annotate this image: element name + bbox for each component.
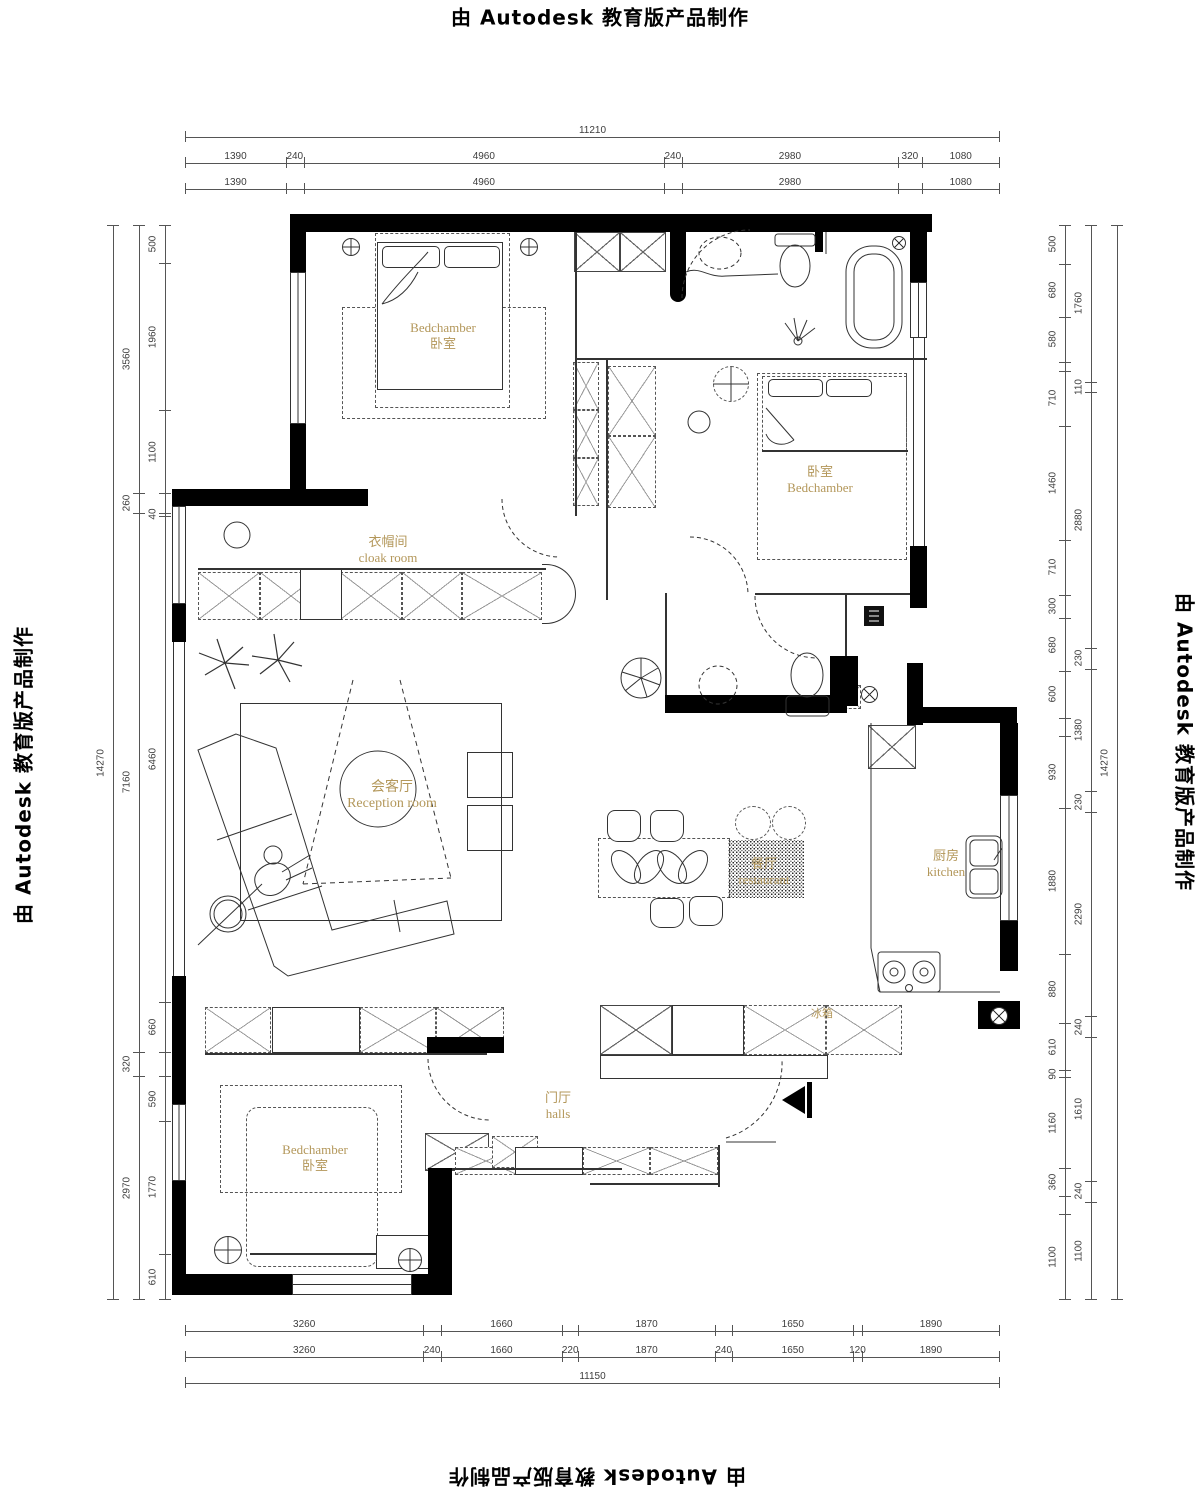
dimension-value: 260: [121, 495, 132, 512]
dimension-segment: 710: [1040, 540, 1066, 595]
door-arc-bedroom1: [502, 499, 560, 557]
wall-segment: [172, 604, 186, 642]
dimension-value: 1890: [920, 1319, 942, 1330]
cabinet: [600, 1055, 828, 1079]
wall-segment: [665, 695, 847, 713]
dimension-segment: 1880: [1040, 808, 1066, 954]
dimension-segment: [286, 164, 303, 190]
cabinet-xbox: [574, 232, 620, 272]
dimension-segment: 610: [140, 1254, 166, 1300]
dimension-segment: [664, 164, 681, 190]
dim-col-right-total: 14270: [1092, 225, 1118, 1300]
window: [1000, 795, 1018, 921]
shower-head: [785, 318, 815, 341]
watermark-brand: Autodesk: [480, 6, 594, 30]
fixture-label-fridge: 冰箱: [811, 1008, 833, 1020]
thin-wall: [913, 338, 925, 546]
dim-row-top-detailed: 1390240496024029803201080: [185, 138, 1000, 164]
dimension-segment: 11210: [185, 112, 1000, 138]
dimension-segment: 220: [562, 1332, 578, 1358]
dimension-value: 6460: [147, 748, 158, 770]
dimension-value: 320: [121, 1056, 132, 1073]
bed-pillow: [826, 379, 872, 397]
watermark-left: 由 Autodesk 教育版产品制作: [8, 626, 37, 924]
dimension-value: 1770: [147, 1176, 158, 1198]
floorplan-page: { "watermark": {"prefix": "由", "brand": …: [0, 0, 1200, 1500]
stool: [224, 522, 250, 548]
dimension-segment: 1080: [922, 138, 1001, 164]
dimension-value: 710: [1047, 390, 1058, 407]
watermark-suffix: 教育版产品制作: [448, 1465, 595, 1489]
dimension-segment: 1080: [922, 164, 1001, 190]
stool-2: [688, 411, 710, 433]
burner-center: [890, 968, 898, 976]
window: [290, 272, 306, 424]
dimension-segment: 240: [715, 1332, 733, 1358]
dining-chair-dashed: [735, 806, 771, 840]
wall-stub: [670, 232, 686, 302]
interior-wall: [665, 593, 667, 695]
wall-segment: [910, 546, 927, 608]
room-label-en: Bedchamber: [787, 480, 853, 496]
dimension-segment: 1390: [185, 138, 286, 164]
dimension-segment: 660: [140, 1002, 166, 1052]
wall-segment: [172, 489, 368, 506]
dimension-value: 1890: [920, 1345, 942, 1356]
dim-row-bottom-coarse: 32601660187016501890: [185, 1306, 1000, 1332]
burner-center: [920, 968, 928, 976]
bathtub-inner: [854, 254, 894, 340]
dimension-segment: 590: [140, 1076, 166, 1120]
dimension-segment: 1770: [140, 1121, 166, 1254]
dimension-value: 1650: [782, 1319, 804, 1330]
wall-segment: [172, 976, 186, 1106]
dimension-value: 1870: [635, 1319, 657, 1330]
dimension-segment: 11150: [185, 1358, 1000, 1384]
dimension-segment: 7160: [114, 513, 140, 1052]
wardrobe-end-cap: [542, 564, 576, 624]
door-arc-bathroom2: [755, 596, 817, 658]
toilet2-bowl: [791, 653, 823, 697]
dimension-segment: 500: [140, 225, 166, 263]
dimension-segment: 1100: [140, 410, 166, 493]
dimension-segment: 710: [1040, 371, 1066, 426]
room-label-en: Bedchamber: [282, 1142, 348, 1158]
dimension-value: 1960: [147, 325, 158, 347]
room-label-zh: 冰箱: [811, 1008, 833, 1020]
rug-outline: [240, 703, 502, 921]
watermark-bottom: 由 Autodesk 教育版产品制作: [448, 1464, 746, 1493]
interior-wall: [575, 358, 927, 360]
cabinet: [515, 1147, 583, 1175]
floorplan-canvas: Bedchamber 卧室 卧室 Bedchamber 衣帽间 cloak ro…: [170, 208, 1038, 1300]
shower-point: [794, 337, 802, 345]
dimension-segment: 1380: [1066, 669, 1092, 792]
room-label-zh: 厨房: [927, 848, 965, 864]
dimension-value: 2880: [1073, 509, 1084, 531]
dimension-value: 230: [1073, 650, 1084, 667]
vanity-counter: [686, 270, 778, 276]
dimension-segment: 1100: [1040, 1214, 1066, 1300]
bed-outline: [246, 1107, 378, 1267]
bed-pillow: [444, 246, 500, 268]
ceiling-fan-icon: [713, 366, 749, 402]
dimension-segment: 1960: [140, 263, 166, 411]
wardrobe-xbox: [608, 366, 656, 436]
drain-icon: [892, 236, 906, 250]
dim-col-right-detailed: 5006805807101460710300680600930188088061…: [1040, 225, 1066, 1300]
interior-wall: [762, 450, 908, 452]
dimension-value: 1100: [1073, 1240, 1084, 1262]
dimension-segment: 240: [423, 1332, 441, 1358]
interior-wall: [447, 1168, 622, 1170]
dining-chair: [607, 810, 641, 842]
dining-chair: [689, 896, 723, 926]
wall-segment: [910, 232, 927, 282]
dimension-value: 230: [1073, 793, 1084, 810]
dimension-value: 580: [1047, 331, 1058, 348]
interior-wall: [606, 360, 608, 600]
dimension-segment: 4960: [304, 164, 665, 190]
dimension-segment: 240: [286, 138, 303, 164]
toilet-tank: [775, 234, 815, 246]
dimension-value: 240: [286, 151, 303, 162]
wall-segment: [815, 232, 823, 252]
dimension-segment: 1890: [862, 1306, 1000, 1332]
dimension-value: 2290: [1073, 903, 1084, 925]
dimension-value: 1080: [950, 151, 972, 162]
dimension-value: 680: [1047, 282, 1058, 299]
fan: [621, 658, 661, 698]
dimension-value: 240: [424, 1345, 441, 1356]
interior-wall: [755, 593, 927, 595]
watermark-brand: Autodesk: [12, 781, 36, 895]
wall-segment: [290, 214, 306, 272]
dimension-value: 1160: [1047, 1112, 1058, 1134]
bathtub: [846, 246, 902, 348]
dimension-segment: 240: [664, 138, 681, 164]
window: [172, 1104, 186, 1181]
dimension-value: 610: [147, 1269, 158, 1286]
room-label-zh: 会客厅: [347, 780, 437, 796]
dimension-value: 300: [1047, 598, 1058, 615]
wardrobe-xbox: [360, 1007, 436, 1053]
dimension-segment: 320: [898, 138, 921, 164]
electrical-panel-grid: [869, 611, 879, 621]
dimension-segment: 3260: [185, 1332, 423, 1358]
interior-wall: [250, 1253, 376, 1255]
dimension-value: 1650: [782, 1345, 804, 1356]
dimension-value: 240: [665, 151, 682, 162]
room-label-kitchen: 厨房 kitchen: [927, 848, 965, 880]
interior-wall: [718, 1145, 720, 1187]
dimension-value: 680: [1047, 636, 1058, 653]
dimension-segment: 300: [1040, 595, 1066, 618]
burner: [913, 961, 935, 983]
room-label-zh: 卧室: [282, 1158, 348, 1174]
dimension-value: 2980: [779, 177, 801, 188]
dimension-value: 1390: [224, 177, 246, 188]
room-label-en: Reception room: [347, 796, 437, 812]
dimension-value: 1080: [950, 177, 972, 188]
ceiling-light-icon: [398, 1248, 422, 1272]
plant: [199, 634, 302, 689]
dimension-segment: 14270: [88, 225, 114, 1300]
dimension-segment: [715, 1306, 733, 1332]
dimension-segment: 500: [1040, 225, 1066, 264]
thin-wall: [173, 638, 185, 976]
room-label-reception-room: 会客厅 Reception room: [347, 780, 437, 812]
room-label-bedroom-right: 卧室 Bedchamber: [787, 464, 853, 496]
dimension-segment: [1040, 718, 1066, 736]
dimension-segment: 1760: [1066, 225, 1092, 382]
dimension-value: 500: [147, 235, 158, 252]
stove-knob: [906, 985, 913, 992]
room-label-cloak-room: 衣帽间 cloak room: [359, 534, 418, 566]
dim-col-right-coarse: 176011028802301380230229024016102401100: [1066, 225, 1092, 1300]
dimension-value: 120: [849, 1345, 866, 1356]
dimension-block-right: 5006805807101460710300680600930188088061…: [1040, 225, 1118, 1300]
wardrobe-xbox: [608, 436, 656, 508]
bed-pillow: [768, 379, 823, 397]
dimension-segment: 6460: [140, 516, 166, 1003]
dim-row-bottom-detailed: 32602401660220187024016501201890: [185, 1332, 1000, 1358]
dimension-value: 360: [1047, 1173, 1058, 1190]
dimension-value: 710: [1047, 559, 1058, 576]
dimension-segment: 600: [1040, 671, 1066, 718]
door-arc-bedroom2: [690, 537, 748, 595]
dimension-value: 320: [902, 151, 919, 162]
cabinet: [672, 1005, 744, 1055]
dimension-value: 1880: [1047, 870, 1058, 892]
dimension-segment: 2290: [1066, 812, 1092, 1016]
wardrobe-xbox: [402, 572, 462, 620]
dimension-segment: 14270: [1092, 225, 1118, 1300]
cabinet: [272, 1007, 360, 1053]
dining-chair: [650, 898, 684, 928]
watermark-prefix: 由: [725, 1465, 746, 1489]
room-label-zh: 门厅: [545, 1090, 571, 1106]
door-arc-bedroom3: [428, 1059, 490, 1120]
dimension-segment: 2880: [1066, 392, 1092, 649]
burner: [883, 961, 905, 983]
rug-outline: [467, 805, 513, 851]
dimension-value: 110: [1073, 379, 1084, 395]
dimension-value: 11210: [579, 125, 606, 136]
dimension-block-left: 14270 356026071603202970 500196011004064…: [88, 225, 166, 1300]
wardrobe-xbox: [462, 572, 542, 620]
door-arc-bathroom1: [682, 230, 750, 298]
wall-segment: [428, 1168, 452, 1295]
dimension-value: 240: [715, 1345, 732, 1356]
dimension-segment: 1870: [578, 1332, 715, 1358]
room-label-bedroom-top-left: Bedchamber 卧室: [410, 320, 476, 352]
room-label-en: Bedchamber: [410, 320, 476, 336]
dimension-segment: 240: [1066, 1181, 1092, 1202]
dimension-segment: 2970: [114, 1076, 140, 1300]
watermark-right: 由 Autodesk 教育版产品制作: [1172, 593, 1200, 891]
dim-row-top-coarse: 1390496029801080: [185, 164, 1000, 190]
watermark-brand: Autodesk: [1173, 622, 1197, 736]
dimension-segment: 120: [853, 1332, 862, 1358]
window: [172, 506, 186, 604]
window: [910, 282, 927, 338]
watermark-prefix: 由: [451, 6, 472, 30]
rug-outline: [467, 752, 513, 798]
dimension-value: 1390: [224, 151, 246, 162]
dimension-value: 880: [1047, 980, 1058, 997]
dimension-value: 1660: [490, 1345, 512, 1356]
dimension-value: 500: [1047, 236, 1058, 253]
dimension-value: 610: [1047, 1038, 1058, 1055]
room-label-zh: 卧室: [787, 464, 853, 480]
dimension-segment: 1660: [441, 1306, 562, 1332]
wall-segment: [907, 707, 1017, 723]
interior-wall: [575, 232, 577, 516]
dimension-segment: 1460: [1040, 426, 1066, 540]
dimension-segment: 680: [1040, 264, 1066, 317]
interior-wall: [205, 1053, 487, 1055]
dimension-value: 3260: [293, 1345, 315, 1356]
sink: [966, 836, 1002, 898]
wardrobe-xbox: [205, 1007, 271, 1053]
dimension-segment: [1040, 1196, 1066, 1215]
room-label-zh: 卧室: [410, 336, 476, 352]
dimension-segment: 230: [1066, 648, 1092, 668]
floor-drain-inner: [214, 900, 242, 928]
room-label-halls: 门厅 halls: [545, 1090, 571, 1122]
interior-wall: [590, 1183, 720, 1185]
dimension-segment: 2980: [682, 164, 899, 190]
watermark-suffix: 教育版产品制作: [1173, 744, 1197, 891]
dimension-segment: 930: [1040, 736, 1066, 808]
dimension-value: 4960: [473, 151, 495, 162]
dimension-value: 930: [1047, 764, 1058, 781]
dimension-value: 220: [562, 1345, 579, 1356]
dimension-value: 2970: [121, 1177, 132, 1199]
dimension-value: 1610: [1073, 1098, 1084, 1120]
room-label-en: cloak room: [359, 550, 418, 566]
sink-basin: [970, 840, 998, 866]
dimension-segment: 240: [1066, 1016, 1092, 1037]
dim-col-left-detailed: 500196011004064606605901770610: [140, 225, 166, 1300]
wall-segment: [1000, 921, 1018, 971]
dimension-value: 4960: [473, 177, 495, 188]
dimension-value: 2980: [779, 151, 801, 162]
dimension-segment: [562, 1306, 578, 1332]
dimension-segment: [898, 164, 921, 190]
watermark-prefix: 由: [12, 903, 36, 924]
dimension-value: 3260: [293, 1319, 315, 1330]
dining-chair-dashed: [772, 806, 806, 840]
dimension-segment: 230: [1066, 791, 1092, 811]
room-label-en: kitchen: [927, 864, 965, 880]
dimension-segment: [423, 1306, 441, 1332]
dimension-segment: 680: [1040, 618, 1066, 671]
room-label-en: restaurant: [738, 872, 789, 888]
entry-arrow: [782, 1086, 805, 1114]
dimension-segment: 580: [1040, 317, 1066, 362]
dimension-segment: 1870: [578, 1306, 715, 1332]
dimension-segment: 4960: [304, 138, 665, 164]
ceiling-light-icon: [342, 238, 360, 256]
wardrobe-xbox: [826, 1005, 902, 1055]
dim-col-left-coarse: 356026071603202970: [114, 225, 140, 1300]
wardrobe-xbox: [650, 1147, 718, 1175]
wall-segment: [290, 214, 932, 232]
dimension-value: 3560: [121, 348, 132, 370]
ceiling-light-icon: [520, 238, 538, 256]
wall-segment: [172, 1274, 292, 1295]
interior-wall: [198, 568, 546, 570]
dimension-block-bottom: 32601660187016501890 3260240166022018702…: [185, 1306, 1000, 1384]
cabinet-xbox: [600, 1005, 672, 1055]
dimension-value: 11150: [579, 1371, 605, 1382]
dimension-value: 240: [1073, 1183, 1084, 1200]
dimension-value: 1460: [1047, 472, 1058, 494]
dim-row-top-total: 11210: [185, 112, 1000, 138]
wall-segment: [1000, 723, 1018, 795]
dimension-segment: 1660: [441, 1332, 562, 1358]
watermark-top: 由 Autodesk 教育版产品制作: [451, 2, 749, 31]
dining-chair: [650, 810, 684, 842]
wardrobe-xbox: [340, 572, 402, 620]
dimension-segment: 1890: [862, 1332, 1000, 1358]
dimension-segment: 260: [114, 493, 140, 513]
dimension-value: 14270: [1099, 749, 1110, 777]
dimension-segment: 3560: [114, 225, 140, 493]
electrical-panel: [864, 606, 884, 626]
dimension-segment: 610: [1040, 1023, 1066, 1070]
dimension-segment: 360: [1040, 1168, 1066, 1196]
watermark-suffix: 教育版产品制作: [12, 626, 36, 773]
wall-segment: [427, 1037, 504, 1053]
dimension-segment: 2980: [682, 138, 899, 164]
dimension-block-top: 11210 1390240496024029803201080 13904960…: [185, 112, 1000, 190]
wardrobe-xbox: [583, 1147, 650, 1175]
entry-arrow-bar: [807, 1082, 812, 1118]
window: [292, 1274, 412, 1295]
dimension-value: 1100: [1047, 1246, 1058, 1268]
drain-icon: [861, 686, 878, 703]
dimension-segment: 320: [114, 1052, 140, 1076]
dimension-value: 1760: [1073, 292, 1084, 314]
bed-pillow: [382, 246, 440, 268]
stove: [878, 952, 940, 992]
dimension-segment: 1160: [1040, 1077, 1066, 1167]
dimension-segment: 1100: [1066, 1202, 1092, 1300]
toilet-bowl: [780, 245, 810, 287]
dim-row-bottom-total: 11150: [185, 1358, 1000, 1384]
dimension-value: 1100: [147, 441, 158, 463]
dimension-segment: [1040, 362, 1066, 371]
dimension-value: 14270: [95, 749, 106, 777]
dimension-value: 90: [1047, 1068, 1058, 1079]
dimension-segment: 110: [1066, 382, 1092, 392]
room-label-zh: 餐厅: [738, 856, 789, 872]
dimension-value: 590: [147, 1090, 158, 1107]
dashed-outline: [598, 838, 730, 898]
dimension-segment: 1610: [1066, 1037, 1092, 1180]
dimension-segment: 3260: [185, 1306, 423, 1332]
watermark-brand: Autodesk: [603, 1465, 717, 1489]
sink-basin: [970, 869, 998, 894]
dim-col-left-total: 14270: [88, 225, 114, 1300]
watermark-suffix: 教育版产品制作: [602, 6, 749, 30]
dimension-segment: 1390: [185, 164, 286, 190]
dimension-segment: 1650: [732, 1306, 853, 1332]
dimension-segment: [853, 1306, 862, 1332]
